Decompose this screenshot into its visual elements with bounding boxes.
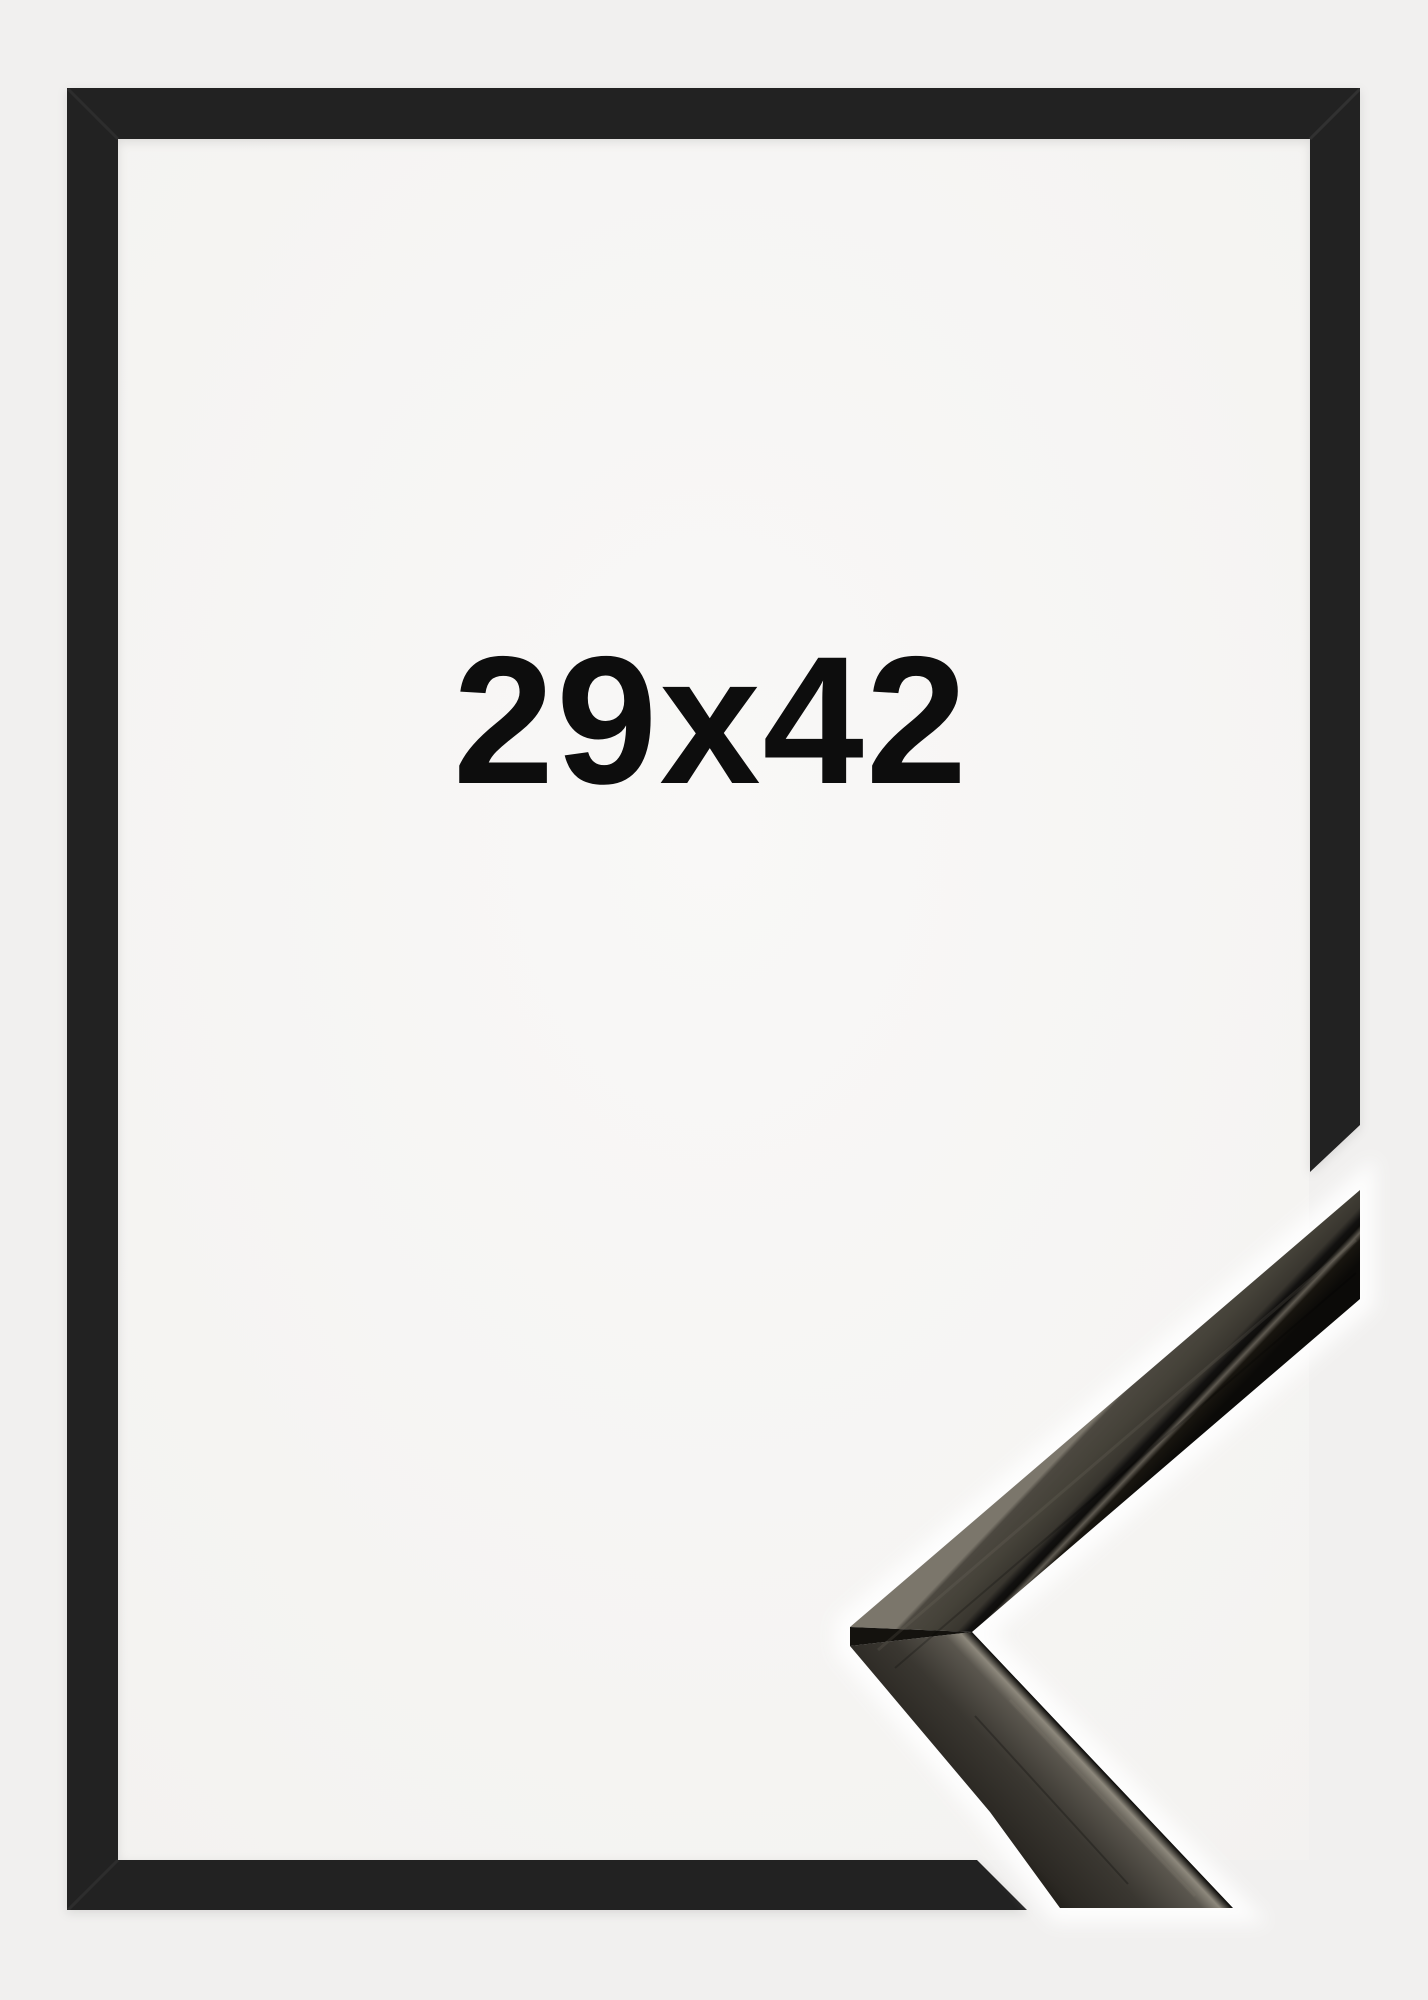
frame-size-label: 29x42 xyxy=(453,618,969,822)
frame-inner-panel xyxy=(118,139,1309,1860)
frame-product-image: 29x42 xyxy=(0,0,1428,2000)
picture-frame-graphic: 29x42 xyxy=(0,0,1428,2000)
